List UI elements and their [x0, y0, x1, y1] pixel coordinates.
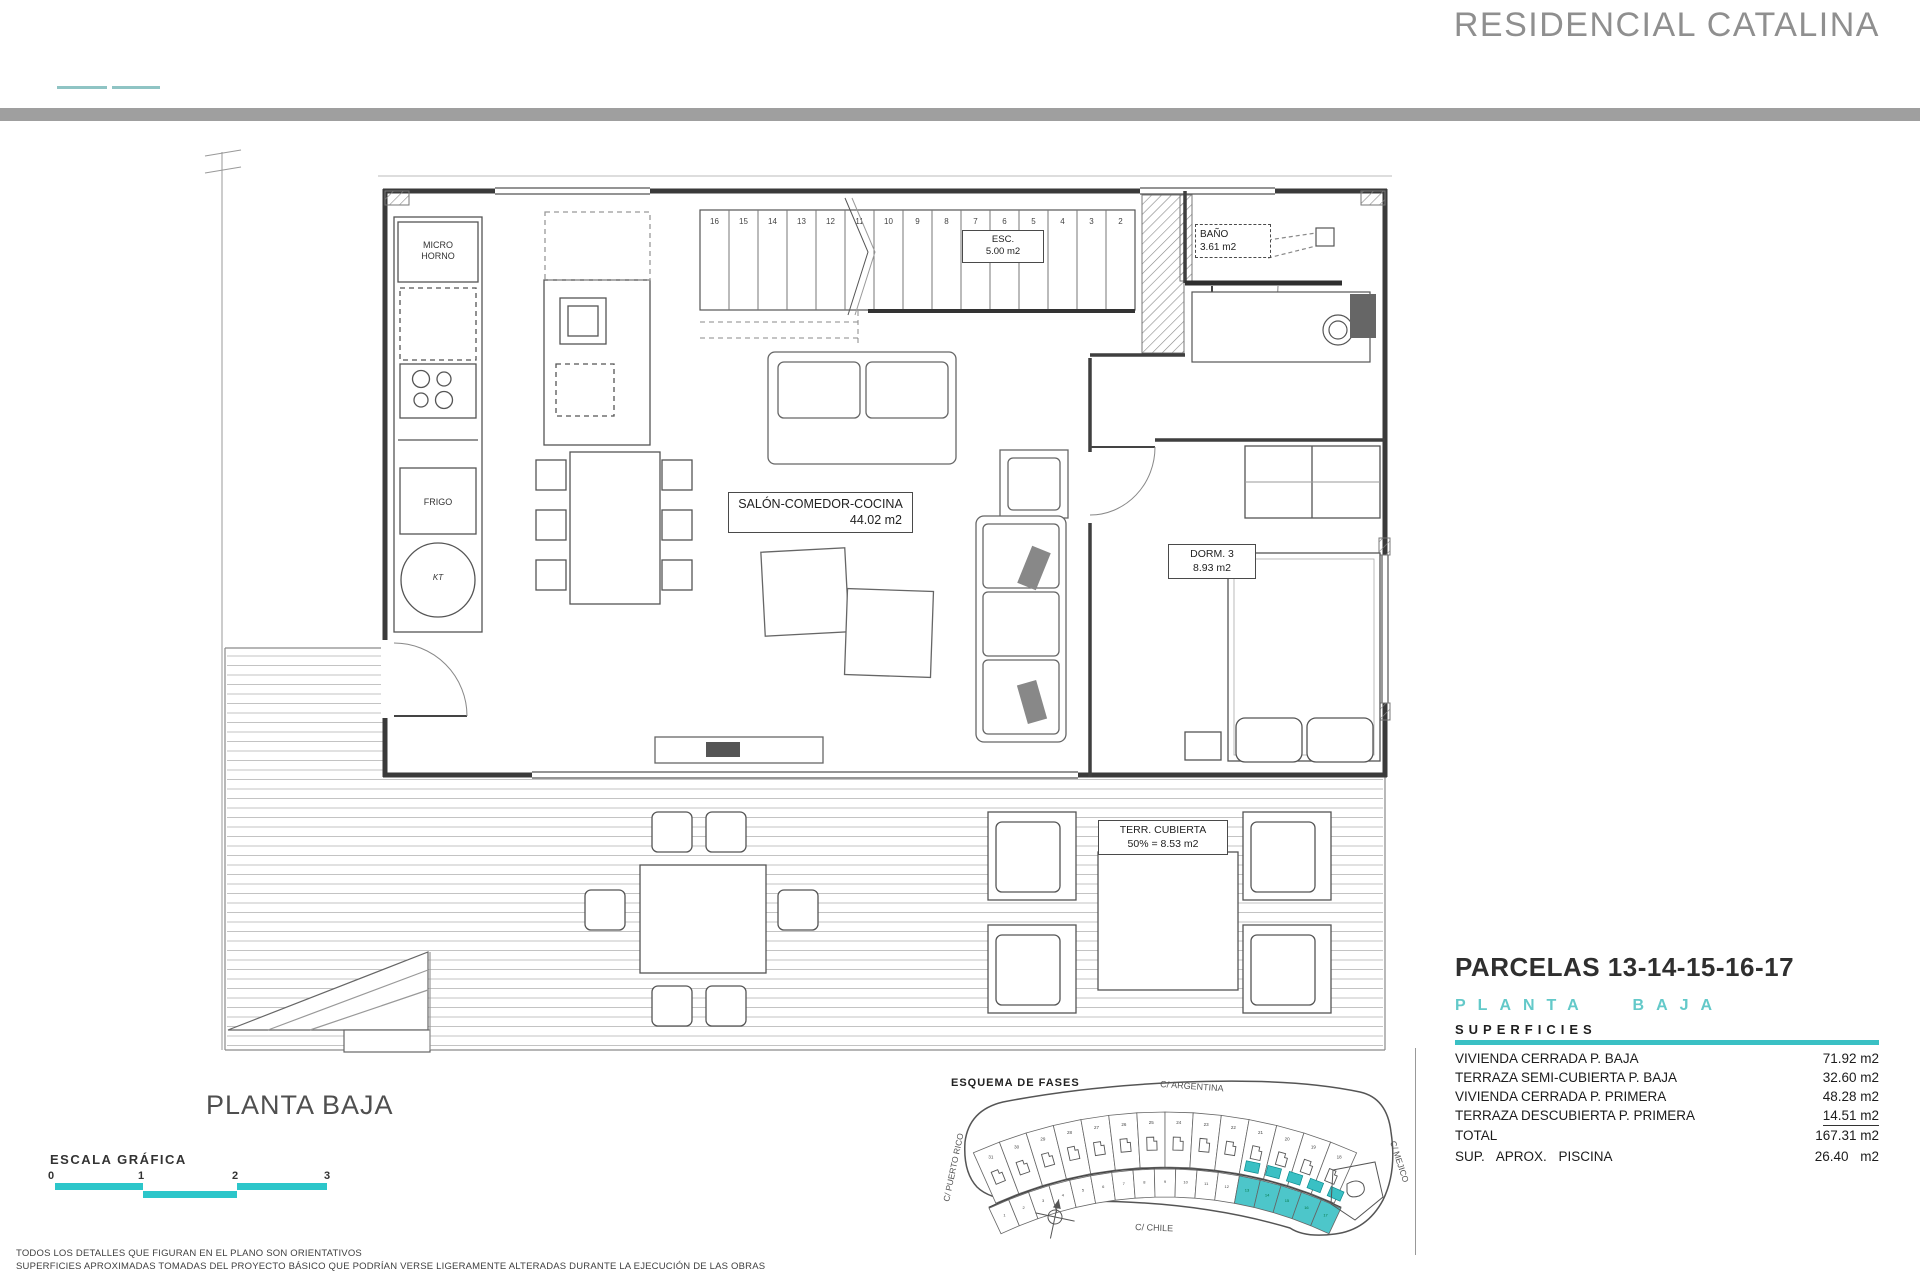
room-label-esc: ESC.5.00 m2 — [962, 230, 1044, 263]
svg-text:13: 13 — [797, 217, 806, 226]
table-row: VIVIENDA CERRADA P. PRIMERA48.28 m2 — [1455, 1087, 1879, 1106]
bedroom-furniture — [1185, 446, 1380, 762]
room-label-bano: BAÑO3.61 m2 — [1195, 224, 1271, 258]
svg-text:16: 16 — [1304, 1205, 1309, 1210]
svg-text:18: 18 — [1337, 1154, 1343, 1159]
table-row: VIVIENDA CERRADA P. BAJA71.92 m2 — [1455, 1049, 1879, 1068]
svg-text:23: 23 — [1204, 1122, 1210, 1127]
parcels-title: PARCELAS 13-14-15-16-17 — [1455, 952, 1794, 983]
svg-text:21: 21 — [1258, 1130, 1264, 1135]
scale-bar-segment — [55, 1183, 143, 1190]
piscina-row: SUP. APROX. PISCINA26.40 m2 — [1455, 1149, 1879, 1164]
scale-tick: 1 — [138, 1170, 144, 1182]
scale-tick: 3 — [324, 1170, 330, 1182]
site-parcels: 3130292827262524232221201918123456789101… — [973, 1112, 1356, 1234]
svg-text:15: 15 — [739, 217, 748, 226]
svg-text:15: 15 — [1285, 1198, 1290, 1203]
table-row: TERRAZA SEMI-CUBIERTA P. BAJA32.60 m2 — [1455, 1068, 1879, 1087]
kitchen-units — [394, 217, 482, 632]
room-label-salon: SALÓN-COMEDOR-COCINA 44.02 m2 — [728, 492, 913, 533]
island-and-dining — [536, 212, 692, 604]
svg-text:8: 8 — [944, 217, 949, 226]
superficies-heading: SUPERFICIES — [1455, 1022, 1597, 1037]
svg-text:31: 31 — [988, 1154, 994, 1159]
svg-text:25: 25 — [1149, 1120, 1155, 1125]
superficies-table: VIVIENDA CERRADA P. BAJA71.92 m2 TERRAZA… — [1455, 1049, 1879, 1145]
svg-text:7: 7 — [973, 217, 978, 226]
kitchen-label-micro-horno: MICROHORNO — [402, 240, 474, 263]
room-label-dorm3: DORM. 38.93 m2 — [1168, 544, 1256, 579]
svg-text:22: 22 — [1231, 1125, 1237, 1130]
svg-text:12: 12 — [826, 217, 835, 226]
svg-text:12: 12 — [1224, 1184, 1229, 1189]
svg-text:3: 3 — [1089, 217, 1094, 226]
scale-label: ESCALA GRÁFICA — [50, 1152, 187, 1167]
svg-text:30: 30 — [1014, 1145, 1020, 1150]
svg-text:16: 16 — [710, 217, 719, 226]
room-label-terraza: TERR. CUBIERTA50% = 8.53 m2 — [1098, 820, 1228, 855]
svg-text:9: 9 — [915, 217, 920, 226]
street-label-chile: C/ CHILE — [1135, 1222, 1173, 1233]
site-plan: 3130292827262524232221201918123456789101… — [935, 1062, 1415, 1257]
svg-text:19: 19 — [1311, 1145, 1317, 1150]
living-furniture — [655, 352, 1068, 763]
svg-text:13: 13 — [1245, 1188, 1250, 1193]
titleblock-divider — [1415, 1048, 1416, 1255]
disclaimer-line: SUPERFICIES APROXIMADAS TOMADAS DEL PROY… — [16, 1261, 765, 1272]
svg-text:10: 10 — [1183, 1180, 1188, 1185]
site-plan-title: ESQUEMA DE FASES — [951, 1077, 1080, 1089]
stairs: 1615141312111098765432 — [700, 198, 1135, 345]
disclaimer-line: TODOS LOS DETALLES QUE FIGURAN EN EL PLA… — [16, 1248, 362, 1259]
svg-text:20: 20 — [1285, 1137, 1291, 1142]
svg-text:24: 24 — [1176, 1120, 1182, 1125]
table-row-total: TOTAL167.31 m2 — [1455, 1126, 1879, 1145]
svg-text:6: 6 — [1002, 217, 1007, 226]
svg-text:17: 17 — [1323, 1213, 1328, 1218]
svg-text:14: 14 — [1265, 1192, 1270, 1197]
kitchen-label-frigo: FRIGO — [402, 497, 474, 508]
svg-text:2: 2 — [1118, 217, 1123, 226]
kitchen-label-kt: KT — [424, 573, 452, 583]
svg-text:26: 26 — [1121, 1122, 1127, 1127]
svg-text:29: 29 — [1040, 1137, 1046, 1142]
street-label-mejico: C/ MEJICO — [1388, 1140, 1411, 1184]
plan-title: PLANTA BAJA — [206, 1090, 394, 1121]
svg-text:14: 14 — [768, 217, 777, 226]
svg-text:27: 27 — [1094, 1125, 1100, 1130]
table-row: TERRAZA DESCUBIERTA P. PRIMERA14.51 m2 — [1455, 1106, 1879, 1126]
floor-heading: PLANTA BAJA — [1455, 997, 1724, 1015]
scale-tick: 2 — [232, 1170, 238, 1182]
svg-text:5: 5 — [1031, 217, 1036, 226]
svg-text:28: 28 — [1067, 1130, 1073, 1135]
street-label-puerto-rico: C/ PUERTO RICO — [941, 1132, 965, 1203]
svg-text:10: 10 — [884, 217, 893, 226]
svg-text:4: 4 — [1060, 217, 1065, 226]
scale-tick: 0 — [48, 1170, 54, 1182]
scale-bar-segment — [237, 1183, 327, 1190]
scale-bar-segment — [143, 1191, 237, 1198]
superficies-underline — [1455, 1040, 1879, 1045]
